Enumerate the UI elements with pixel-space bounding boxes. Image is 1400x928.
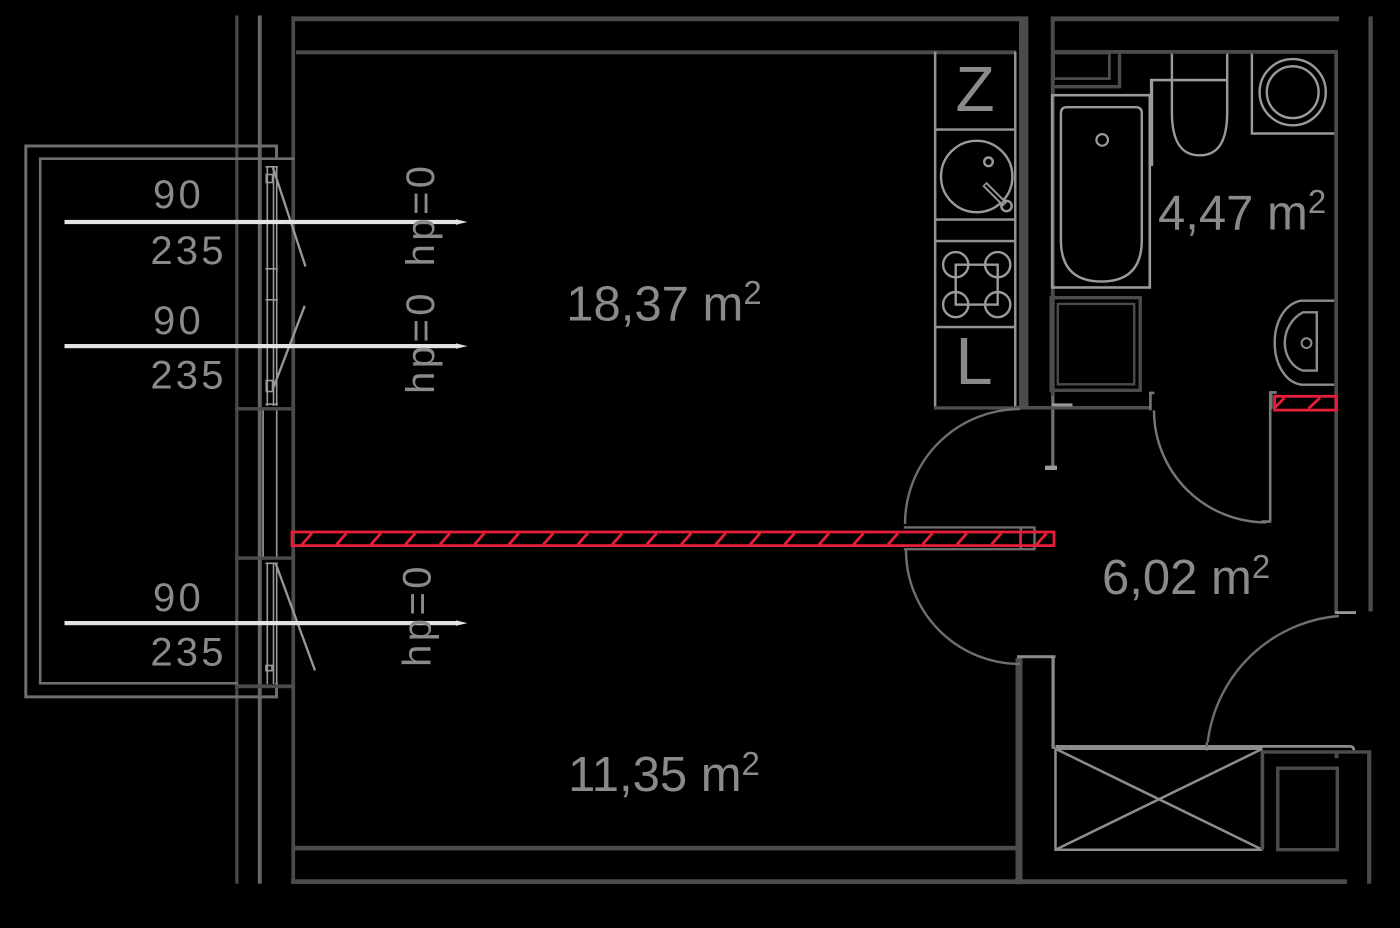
svg-text:18,37 m2: 18,37 m2 (566, 274, 761, 331)
svg-text:235: 235 (150, 229, 226, 273)
svg-text:90: 90 (153, 173, 204, 217)
svg-text:6,02 m2: 6,02 m2 (1102, 548, 1270, 605)
svg-text:235: 235 (150, 354, 226, 398)
svg-text:235: 235 (150, 631, 226, 675)
svg-text:90: 90 (153, 299, 204, 343)
svg-text:4,47 m2: 4,47 m2 (1158, 183, 1326, 240)
svg-text:hp=0: hp=0 (399, 290, 443, 394)
svg-text:11,35 m2: 11,35 m2 (568, 745, 760, 802)
svg-text:hp=0: hp=0 (399, 163, 443, 267)
svg-text:L: L (955, 324, 992, 399)
svg-text:90: 90 (153, 576, 204, 620)
svg-text:Z: Z (955, 53, 994, 125)
svg-text:hp=0: hp=0 (396, 563, 440, 667)
